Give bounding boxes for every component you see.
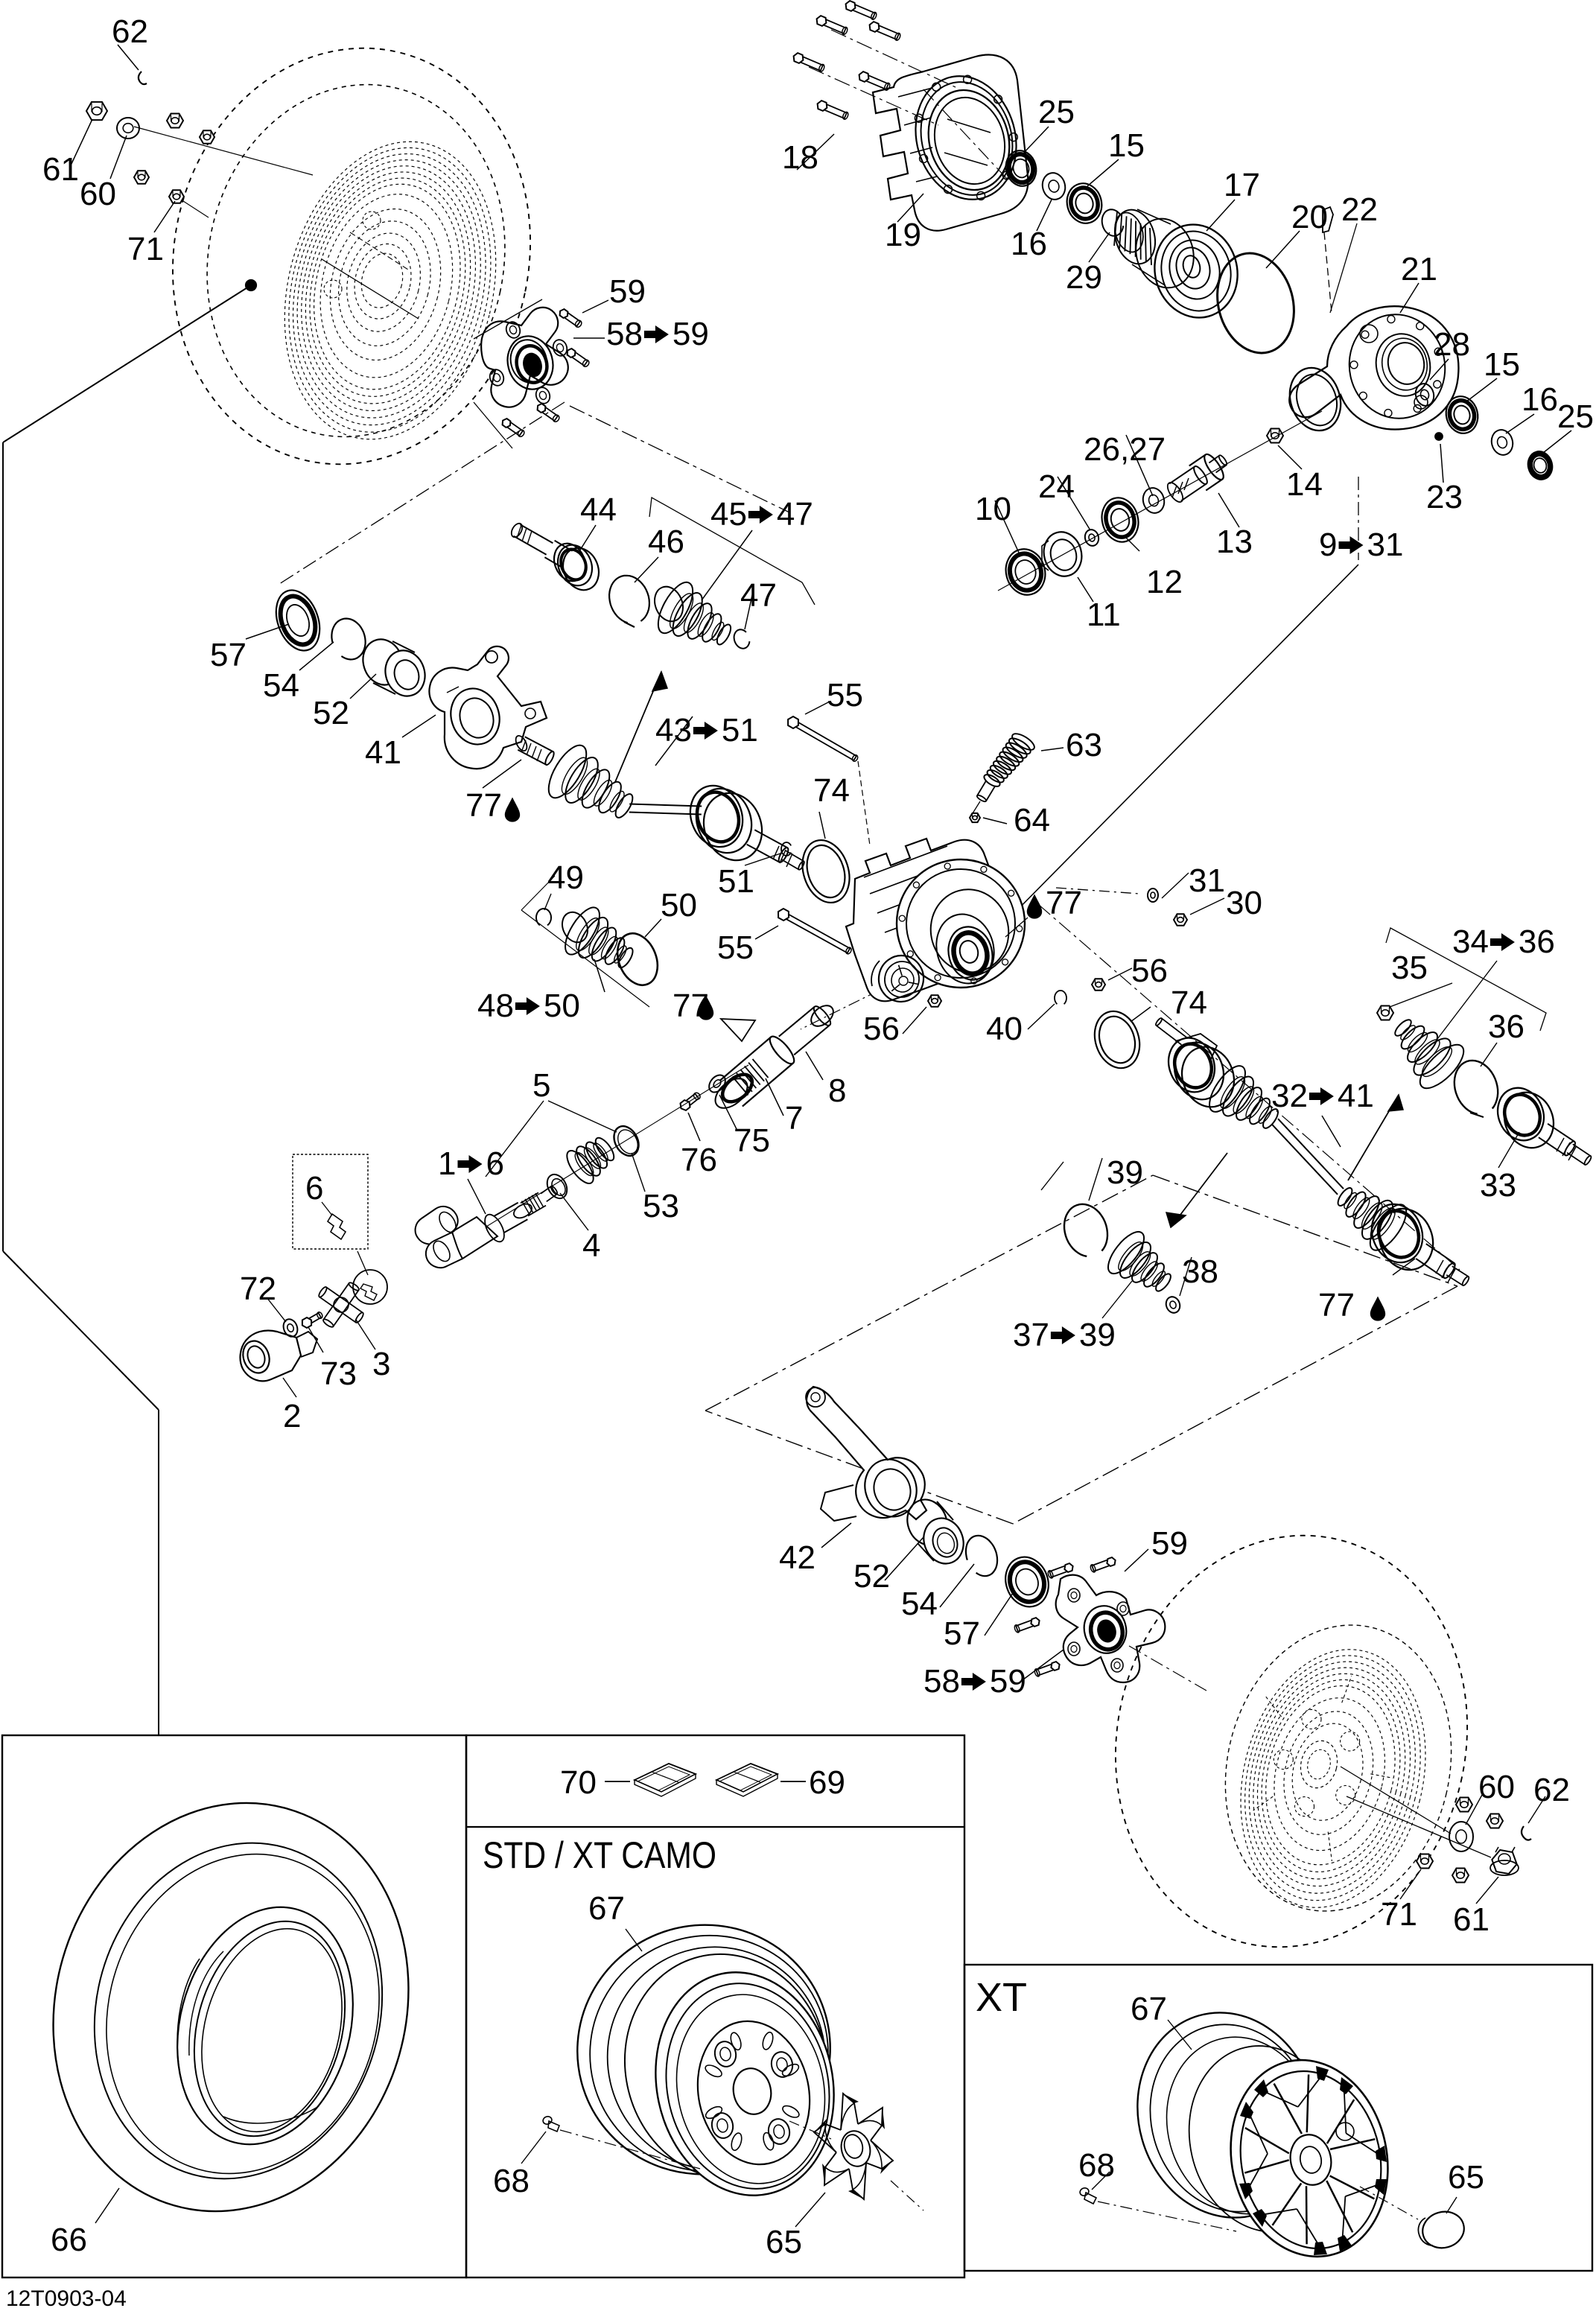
svg-text:54: 54 (901, 1586, 938, 1622)
svg-text:53: 53 (643, 1188, 679, 1224)
svg-text:16: 16 (1522, 381, 1558, 418)
svg-text:59: 59 (673, 316, 709, 352)
svg-text:15: 15 (1484, 346, 1520, 383)
svg-text:6: 6 (305, 1170, 323, 1207)
svg-text:21: 21 (1401, 251, 1437, 287)
svg-text:1: 1 (438, 1145, 456, 1182)
svg-text:52: 52 (313, 695, 349, 731)
svg-text:14: 14 (1286, 466, 1323, 503)
svg-text:7: 7 (785, 1100, 803, 1137)
svg-text:19: 19 (885, 217, 921, 253)
svg-text:25: 25 (1557, 398, 1594, 435)
svg-text:8: 8 (828, 1072, 846, 1109)
svg-text:49: 49 (547, 859, 584, 896)
svg-text:46: 46 (648, 524, 684, 560)
svg-text:60: 60 (1478, 1769, 1515, 1805)
svg-text:73: 73 (320, 1355, 357, 1392)
svg-text:31: 31 (1189, 862, 1225, 899)
svg-text:16: 16 (1011, 226, 1047, 262)
svg-text:29: 29 (1066, 259, 1102, 296)
svg-text:68: 68 (493, 2163, 530, 2199)
svg-text:59: 59 (990, 1663, 1026, 1700)
svg-text:10: 10 (975, 491, 1011, 527)
svg-text:71: 71 (127, 231, 164, 267)
svg-text:54: 54 (263, 667, 299, 704)
svg-text:33: 33 (1480, 1167, 1516, 1204)
svg-text:77: 77 (673, 988, 709, 1024)
svg-text:61: 61 (1453, 1901, 1490, 1938)
svg-text:32: 32 (1271, 1078, 1308, 1114)
svg-text:58: 58 (923, 1663, 960, 1700)
svg-text:42: 42 (779, 1539, 816, 1576)
svg-text:12T0903-04: 12T0903-04 (6, 2286, 127, 2311)
svg-text:74: 74 (813, 772, 850, 809)
svg-text:77: 77 (1318, 1287, 1355, 1323)
svg-text:67: 67 (1131, 1991, 1167, 2027)
svg-text:37: 37 (1013, 1317, 1049, 1353)
svg-text:52: 52 (853, 1558, 890, 1595)
svg-text:20: 20 (1291, 199, 1328, 235)
svg-text:55: 55 (827, 677, 863, 713)
svg-text:6: 6 (486, 1145, 504, 1182)
svg-text:64: 64 (1014, 802, 1050, 839)
svg-text:25: 25 (1038, 94, 1075, 130)
svg-text:31: 31 (1367, 527, 1404, 563)
svg-text:60: 60 (80, 176, 116, 212)
svg-text:56: 56 (863, 1011, 900, 1047)
svg-text:68: 68 (1078, 2147, 1115, 2184)
svg-text:13: 13 (1216, 524, 1253, 560)
svg-text:41: 41 (365, 734, 401, 771)
svg-text:35: 35 (1391, 950, 1428, 986)
svg-text:51: 51 (718, 863, 754, 900)
svg-text:74: 74 (1171, 985, 1207, 1021)
svg-text:12: 12 (1146, 564, 1183, 600)
svg-text:11: 11 (1087, 597, 1121, 633)
svg-text:50: 50 (661, 887, 697, 924)
svg-text:18: 18 (782, 139, 818, 176)
svg-text:59: 59 (1151, 1525, 1188, 1562)
svg-text:67: 67 (588, 1890, 625, 1927)
svg-text:3: 3 (372, 1346, 390, 1382)
svg-text:STD / XT CAMO: STD / XT CAMO (483, 1834, 716, 1876)
svg-text:62: 62 (112, 13, 148, 50)
svg-text:77: 77 (1046, 885, 1082, 921)
svg-text:57: 57 (944, 1615, 980, 1652)
svg-text:43: 43 (655, 712, 692, 748)
svg-text:22: 22 (1341, 191, 1378, 228)
svg-text:71: 71 (1381, 1896, 1417, 1933)
svg-text:58: 58 (606, 316, 643, 352)
svg-text:63: 63 (1066, 727, 1102, 763)
svg-text:36: 36 (1488, 1008, 1525, 1045)
svg-text:69: 69 (809, 1764, 845, 1801)
svg-text:39: 39 (1079, 1317, 1116, 1353)
svg-text:17: 17 (1224, 167, 1260, 203)
svg-text:36: 36 (1519, 924, 1555, 960)
svg-text:41: 41 (1338, 1078, 1374, 1114)
svg-text:24: 24 (1038, 468, 1075, 505)
svg-text:38: 38 (1182, 1253, 1218, 1290)
svg-text:47: 47 (777, 496, 813, 533)
svg-text:44: 44 (580, 492, 617, 528)
svg-text:30: 30 (1226, 885, 1262, 921)
svg-text:51: 51 (722, 712, 758, 748)
svg-text:55: 55 (717, 929, 754, 966)
svg-text:XT: XT (976, 1975, 1027, 2020)
svg-text:70: 70 (560, 1764, 597, 1801)
svg-text:4: 4 (582, 1227, 600, 1264)
svg-text:39: 39 (1107, 1154, 1143, 1191)
svg-text:50: 50 (544, 988, 580, 1024)
svg-text:26,27: 26,27 (1084, 431, 1166, 468)
svg-text:61: 61 (42, 151, 79, 188)
svg-text:34: 34 (1452, 924, 1489, 960)
svg-text:76: 76 (681, 1142, 717, 1178)
svg-text:66: 66 (51, 2222, 87, 2258)
svg-text:75: 75 (734, 1122, 770, 1159)
svg-text:47: 47 (740, 577, 777, 614)
svg-text:28: 28 (1434, 326, 1470, 363)
svg-text:72: 72 (240, 1271, 276, 1307)
svg-text:65: 65 (766, 2224, 802, 2260)
svg-text:2: 2 (283, 1398, 301, 1434)
svg-text:9: 9 (1319, 527, 1337, 563)
svg-text:57: 57 (210, 637, 247, 673)
svg-text:40: 40 (986, 1011, 1023, 1047)
svg-text:23: 23 (1426, 479, 1463, 515)
svg-text:56: 56 (1131, 953, 1168, 989)
svg-text:62: 62 (1533, 1772, 1570, 1808)
svg-text:59: 59 (609, 273, 646, 310)
svg-text:77: 77 (465, 787, 502, 824)
svg-text:65: 65 (1448, 2159, 1484, 2196)
svg-text:5: 5 (532, 1067, 550, 1104)
svg-text:15: 15 (1108, 127, 1145, 164)
svg-text:45: 45 (710, 496, 747, 533)
svg-text:48: 48 (477, 988, 514, 1024)
